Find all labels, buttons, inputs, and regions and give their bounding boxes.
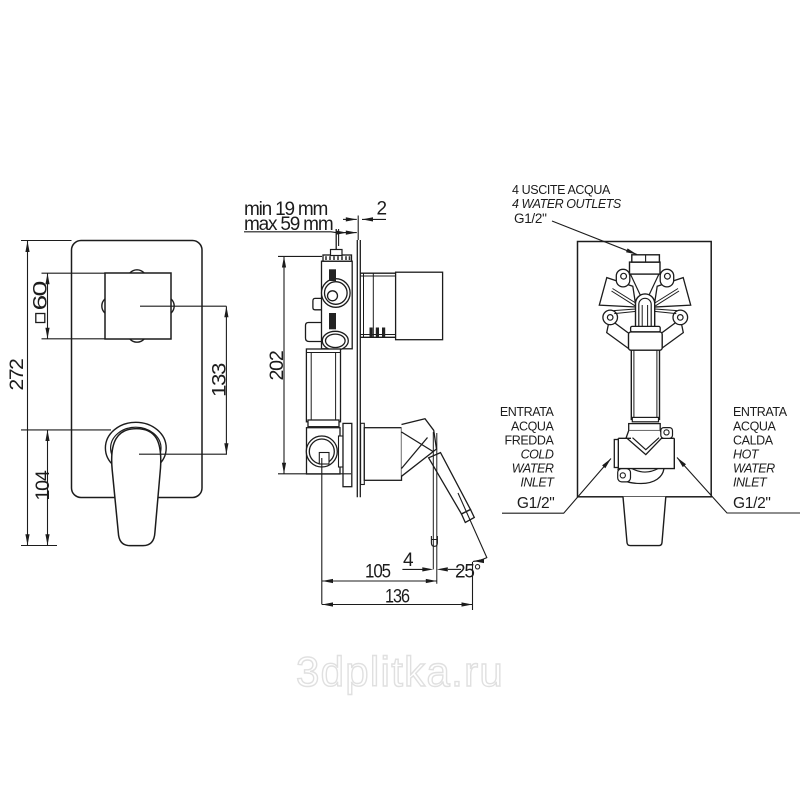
svg-text:ACQUA: ACQUA	[511, 420, 555, 434]
svg-text:ACQUA: ACQUA	[733, 420, 777, 434]
svg-text:G1/2": G1/2"	[517, 495, 555, 512]
svg-text:G1/2": G1/2"	[733, 495, 771, 512]
svg-text:4 WATER OUTLETS: 4 WATER OUTLETS	[512, 197, 622, 211]
svg-text:4: 4	[403, 550, 414, 571]
svg-text:WATER: WATER	[512, 462, 554, 476]
svg-text:COLD: COLD	[521, 448, 554, 462]
svg-text:133: 133	[210, 363, 231, 397]
svg-text:ENTRATA: ENTRATA	[500, 405, 555, 419]
svg-text:4 USCITE ACQUA: 4 USCITE ACQUA	[512, 183, 611, 197]
svg-text:136: 136	[385, 587, 410, 608]
svg-text:CALDA: CALDA	[733, 434, 774, 448]
svg-text:2: 2	[377, 199, 387, 220]
svg-text:3dplitka.ru: 3dplitka.ru	[296, 648, 504, 695]
svg-text:HOT: HOT	[733, 448, 760, 462]
svg-text:max 59 mm: max 59 mm	[244, 214, 333, 235]
svg-text:202: 202	[267, 351, 288, 381]
svg-text:FREDDA: FREDDA	[505, 434, 555, 448]
svg-text:G1/2": G1/2"	[514, 211, 547, 226]
svg-text:ENTRATA: ENTRATA	[733, 405, 788, 419]
svg-text:25°: 25°	[455, 562, 481, 583]
svg-text:60: 60	[31, 282, 52, 311]
svg-text:INLET: INLET	[520, 476, 555, 490]
svg-text:104: 104	[33, 470, 54, 501]
svg-text:INLET: INLET	[733, 476, 768, 490]
svg-text:WATER: WATER	[733, 462, 775, 476]
svg-text:272: 272	[7, 359, 28, 391]
svg-text:105: 105	[365, 562, 391, 583]
